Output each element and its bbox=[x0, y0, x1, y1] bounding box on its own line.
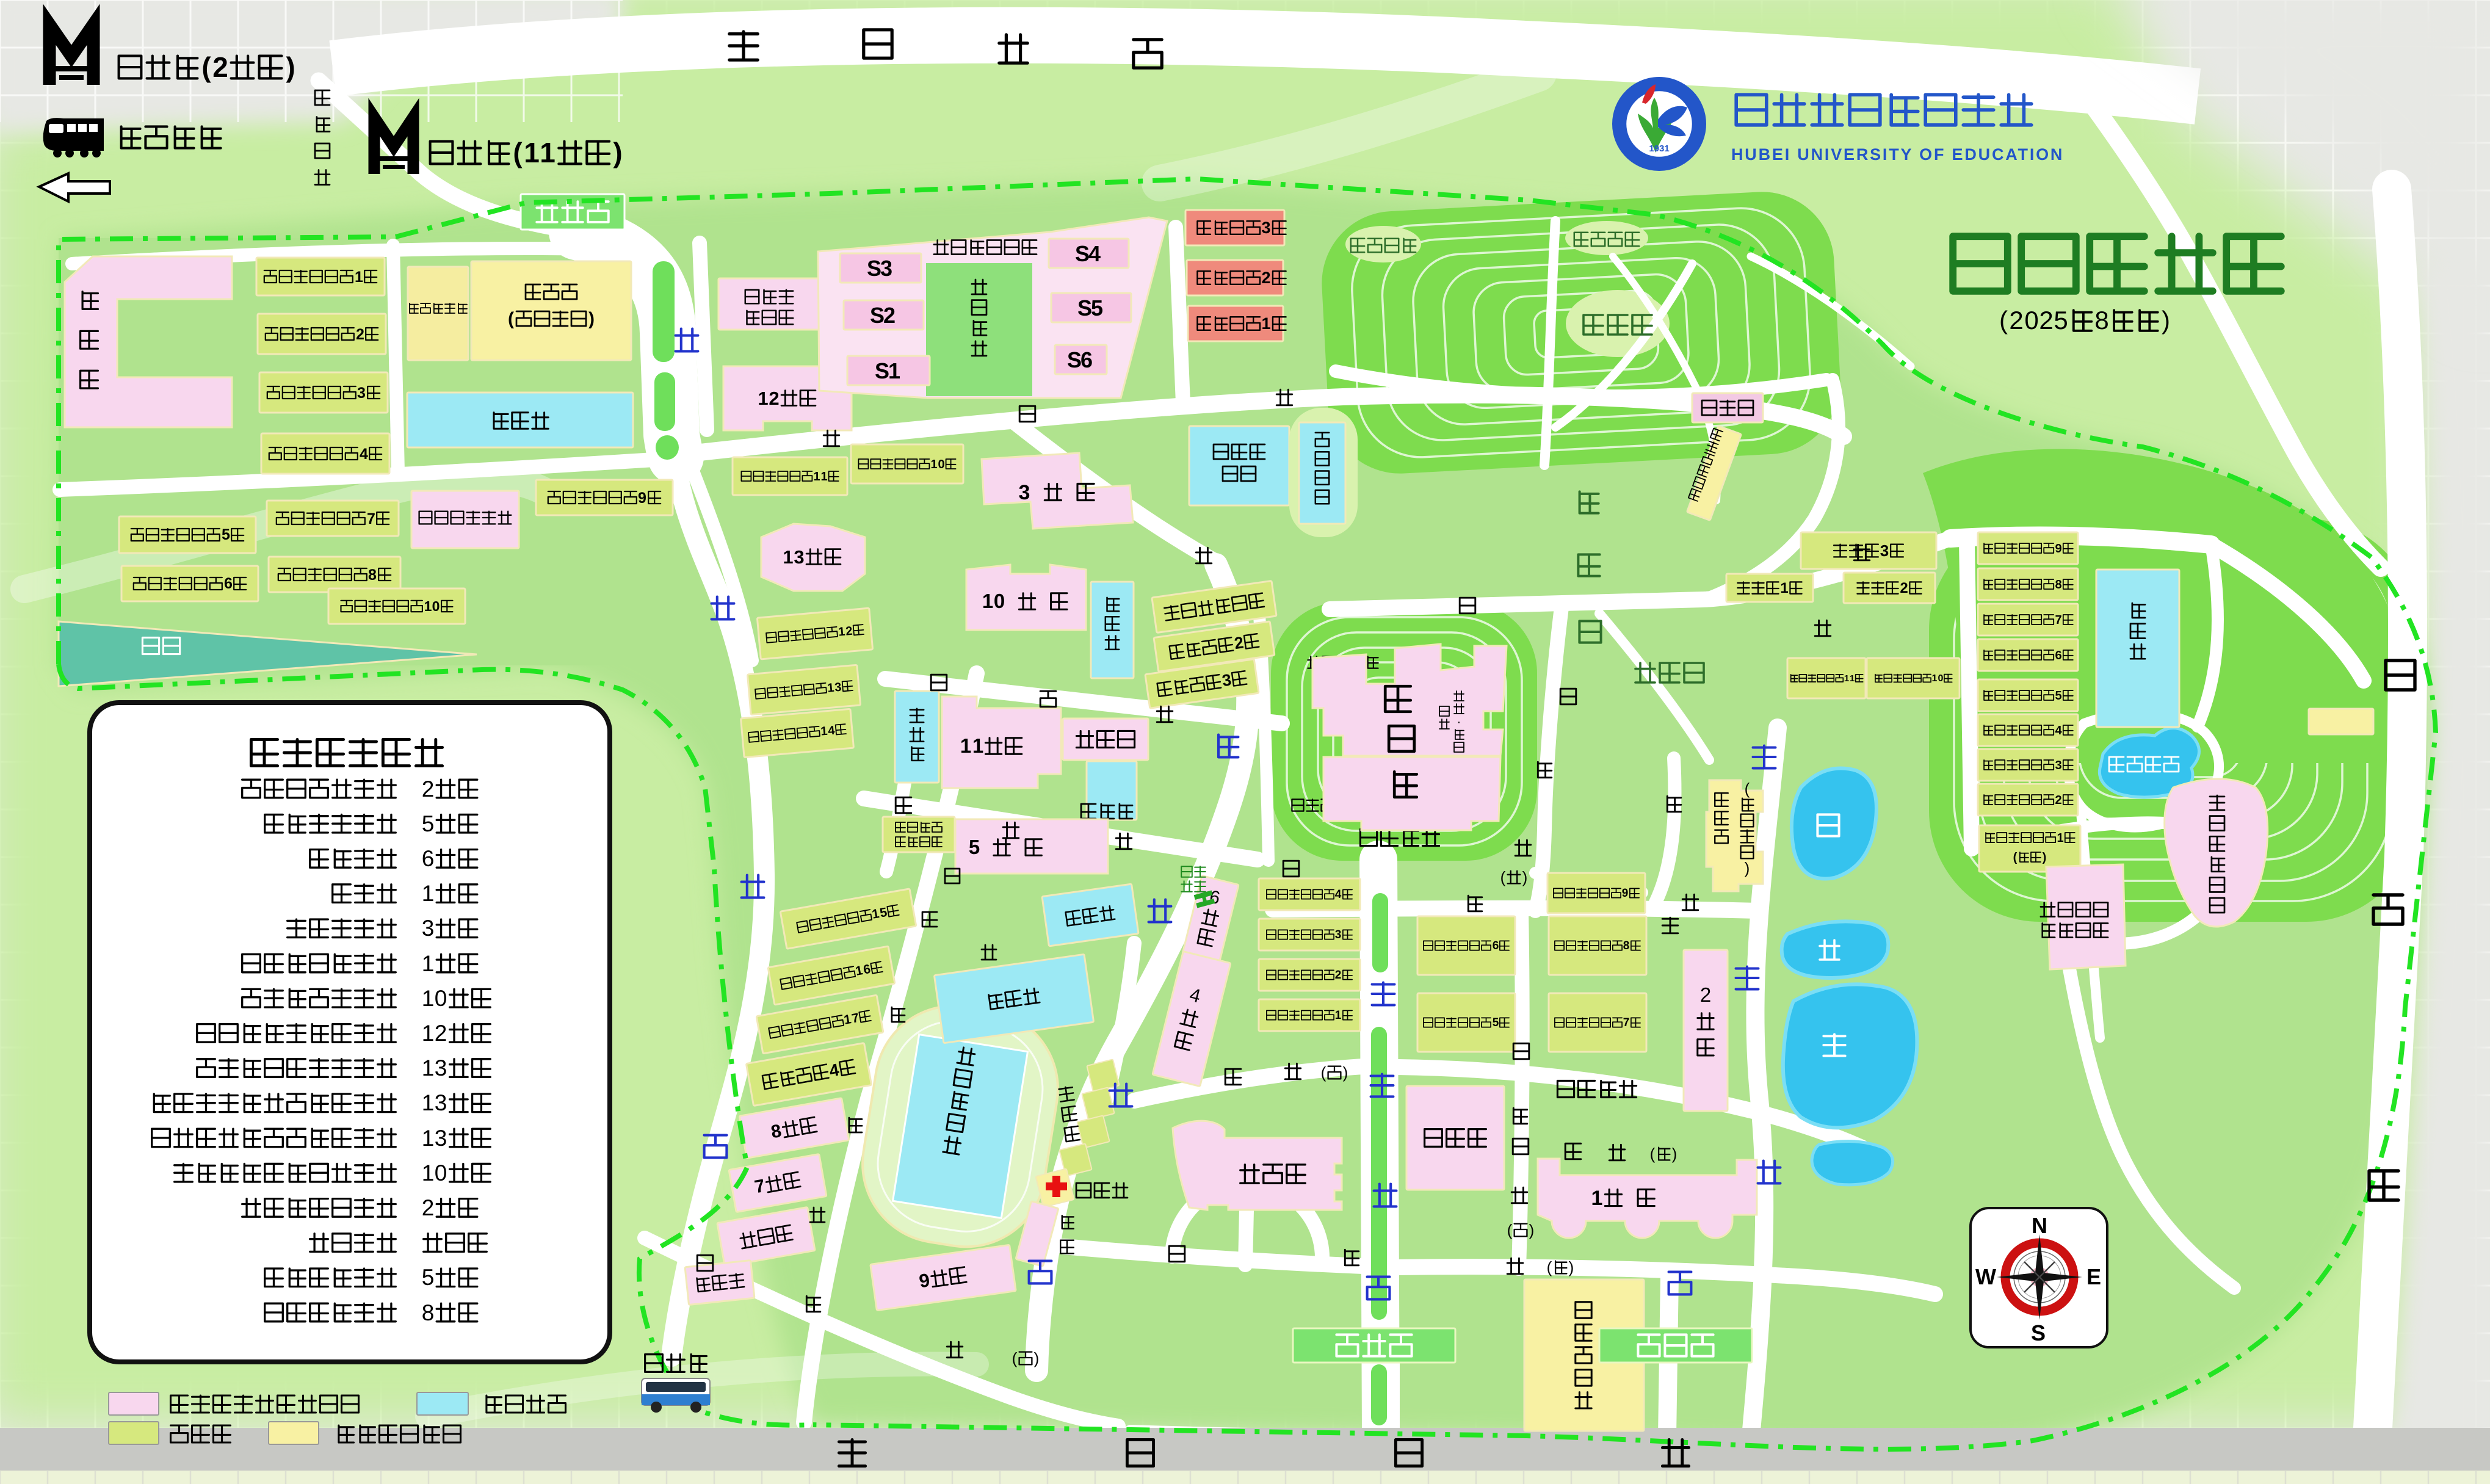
svg-text:(: ( bbox=[1650, 1145, 1656, 1163]
svg-text:5: 5 bbox=[969, 836, 980, 858]
svg-text:S: S bbox=[2031, 1320, 2046, 1345]
svg-text:5: 5 bbox=[2054, 306, 2068, 335]
svg-text:2: 2 bbox=[1700, 983, 1711, 1006]
svg-text:1: 1 bbox=[524, 137, 540, 168]
svg-text:N: N bbox=[2032, 1213, 2047, 1238]
svg-text:S: S bbox=[875, 358, 889, 383]
svg-text:9: 9 bbox=[638, 490, 646, 507]
svg-text:): ) bbox=[286, 51, 295, 83]
svg-text:(: ( bbox=[1012, 1349, 1018, 1367]
svg-text:(: ( bbox=[1507, 1221, 1513, 1239]
svg-text:0: 0 bbox=[432, 598, 440, 614]
svg-text:S: S bbox=[1067, 347, 1082, 372]
svg-text:8: 8 bbox=[2094, 306, 2108, 335]
svg-text:1: 1 bbox=[972, 734, 983, 757]
svg-text:8: 8 bbox=[368, 566, 377, 584]
svg-text:6: 6 bbox=[1080, 347, 1093, 372]
svg-text:3: 3 bbox=[435, 1055, 447, 1080]
svg-text:4: 4 bbox=[2055, 724, 2062, 737]
svg-text:1: 1 bbox=[424, 598, 432, 614]
svg-text:1: 1 bbox=[1591, 1187, 1603, 1210]
svg-text:2: 2 bbox=[845, 624, 853, 639]
svg-text:(: ( bbox=[508, 309, 514, 329]
svg-text:1: 1 bbox=[1850, 673, 1855, 684]
svg-text:1: 1 bbox=[422, 1160, 435, 1185]
svg-text:1: 1 bbox=[838, 625, 845, 639]
svg-text:(: ( bbox=[1745, 780, 1750, 798]
svg-text:1: 1 bbox=[2057, 831, 2063, 845]
svg-text:5: 5 bbox=[1091, 295, 1103, 320]
svg-text:8: 8 bbox=[422, 1300, 435, 1325]
svg-text:1: 1 bbox=[422, 881, 435, 906]
svg-text:7: 7 bbox=[1623, 1016, 1630, 1029]
svg-text:4: 4 bbox=[1335, 888, 1342, 901]
svg-text:1: 1 bbox=[1261, 314, 1270, 333]
svg-text:1: 1 bbox=[355, 269, 363, 286]
svg-text:(: ( bbox=[513, 137, 523, 168]
svg-text:2: 2 bbox=[883, 303, 896, 328]
svg-text:S: S bbox=[1075, 241, 1090, 266]
svg-text:5: 5 bbox=[422, 1265, 435, 1290]
svg-text:6: 6 bbox=[1493, 939, 1499, 952]
svg-text:6: 6 bbox=[2055, 649, 2061, 662]
svg-text:1: 1 bbox=[888, 358, 900, 383]
svg-text:): ) bbox=[1529, 1221, 1535, 1239]
svg-text:4: 4 bbox=[360, 446, 368, 463]
svg-text:(: ( bbox=[201, 51, 211, 83]
svg-text:9: 9 bbox=[2055, 542, 2061, 556]
svg-text:1: 1 bbox=[758, 388, 768, 409]
svg-text:8: 8 bbox=[2055, 578, 2061, 592]
svg-text:): ) bbox=[2043, 851, 2047, 864]
svg-text:(: ( bbox=[1500, 868, 1506, 886]
svg-text:0: 0 bbox=[1938, 673, 1944, 684]
svg-text:): ) bbox=[1343, 1063, 1348, 1082]
svg-text:): ) bbox=[2162, 306, 2170, 335]
svg-text:3: 3 bbox=[435, 1090, 447, 1115]
svg-text:1: 1 bbox=[422, 1126, 435, 1151]
svg-text:7: 7 bbox=[367, 510, 375, 527]
svg-text:2: 2 bbox=[356, 326, 364, 343]
svg-text:2: 2 bbox=[2055, 794, 2061, 807]
svg-text:0: 0 bbox=[994, 590, 1005, 612]
svg-text:2: 2 bbox=[1261, 269, 1270, 287]
svg-text:3: 3 bbox=[1335, 928, 1342, 941]
svg-text:2: 2 bbox=[1900, 580, 1908, 596]
svg-text:3: 3 bbox=[1019, 481, 1030, 504]
svg-text:HUBEI UNIVERSITY OF EDUCATION: HUBEI UNIVERSITY OF EDUCATION bbox=[1731, 145, 2064, 164]
svg-text:0: 0 bbox=[435, 1160, 447, 1185]
svg-text:·: · bbox=[1457, 715, 1461, 729]
svg-text:1: 1 bbox=[422, 1021, 435, 1046]
svg-text:): ) bbox=[1034, 1349, 1040, 1367]
svg-text:0: 0 bbox=[435, 986, 447, 1011]
svg-text:2: 2 bbox=[1335, 969, 1342, 982]
svg-text:1: 1 bbox=[783, 546, 793, 568]
svg-text:8: 8 bbox=[1623, 939, 1630, 952]
svg-text:1: 1 bbox=[982, 590, 993, 612]
svg-text:(: ( bbox=[1321, 1063, 1326, 1082]
svg-text:6: 6 bbox=[422, 846, 435, 871]
svg-text:1: 1 bbox=[820, 470, 827, 483]
svg-text:1: 1 bbox=[1844, 673, 1849, 684]
svg-text:): ) bbox=[588, 309, 595, 329]
svg-text:5: 5 bbox=[222, 526, 230, 543]
svg-text:3: 3 bbox=[435, 1126, 447, 1151]
svg-text:S: S bbox=[1077, 295, 1092, 320]
svg-text:0: 0 bbox=[2024, 306, 2038, 335]
svg-text:1: 1 bbox=[1932, 673, 1938, 684]
svg-text:): ) bbox=[1745, 859, 1750, 877]
svg-text:S: S bbox=[867, 256, 881, 281]
svg-text:1: 1 bbox=[1780, 580, 1788, 596]
svg-text:5: 5 bbox=[1493, 1016, 1499, 1029]
svg-text:2: 2 bbox=[769, 388, 779, 409]
svg-text:): ) bbox=[1672, 1145, 1677, 1163]
svg-text:2: 2 bbox=[422, 1195, 435, 1220]
svg-text:1: 1 bbox=[1335, 1009, 1342, 1022]
svg-text:3: 3 bbox=[2055, 759, 2061, 772]
svg-text:3: 3 bbox=[357, 385, 366, 402]
svg-text:2: 2 bbox=[422, 776, 435, 802]
svg-text:9: 9 bbox=[1622, 887, 1629, 900]
svg-text:1: 1 bbox=[827, 681, 834, 695]
svg-text:S: S bbox=[870, 303, 885, 328]
svg-text:3: 3 bbox=[1261, 219, 1270, 237]
svg-text:): ) bbox=[613, 137, 622, 168]
svg-text:2: 2 bbox=[2009, 306, 2023, 335]
svg-text:2: 2 bbox=[2039, 306, 2053, 335]
svg-text:): ) bbox=[1522, 868, 1528, 886]
svg-text:1: 1 bbox=[422, 986, 435, 1011]
svg-text:1: 1 bbox=[422, 1055, 435, 1080]
svg-text:1: 1 bbox=[930, 458, 937, 471]
svg-text:5: 5 bbox=[2055, 689, 2061, 703]
svg-text:7: 7 bbox=[2055, 614, 2061, 627]
svg-text:3: 3 bbox=[794, 546, 804, 568]
svg-text:1: 1 bbox=[540, 137, 556, 168]
svg-text:(: ( bbox=[1999, 306, 2008, 335]
svg-text:1: 1 bbox=[960, 734, 971, 757]
svg-text:1: 1 bbox=[820, 725, 828, 739]
svg-text:1931: 1931 bbox=[1649, 143, 1669, 154]
svg-text:5: 5 bbox=[422, 811, 435, 836]
svg-text:2: 2 bbox=[212, 51, 228, 83]
svg-text:3: 3 bbox=[422, 916, 435, 941]
svg-text:3: 3 bbox=[834, 681, 842, 695]
svg-text:(: ( bbox=[1547, 1258, 1552, 1276]
svg-text:3: 3 bbox=[1880, 541, 1889, 560]
svg-text:6: 6 bbox=[224, 575, 233, 592]
svg-text:1: 1 bbox=[813, 470, 820, 483]
svg-text:4: 4 bbox=[1088, 241, 1101, 266]
svg-text:W: W bbox=[1975, 1264, 1996, 1289]
svg-text:2: 2 bbox=[435, 1021, 447, 1046]
svg-text:1: 1 bbox=[422, 1090, 435, 1115]
svg-text:1: 1 bbox=[422, 951, 435, 976]
svg-text:): ) bbox=[1569, 1258, 1574, 1276]
svg-text:(: ( bbox=[2013, 851, 2018, 864]
svg-text:3: 3 bbox=[880, 256, 892, 281]
svg-text:E: E bbox=[2086, 1264, 2101, 1289]
svg-text:0: 0 bbox=[938, 458, 944, 471]
